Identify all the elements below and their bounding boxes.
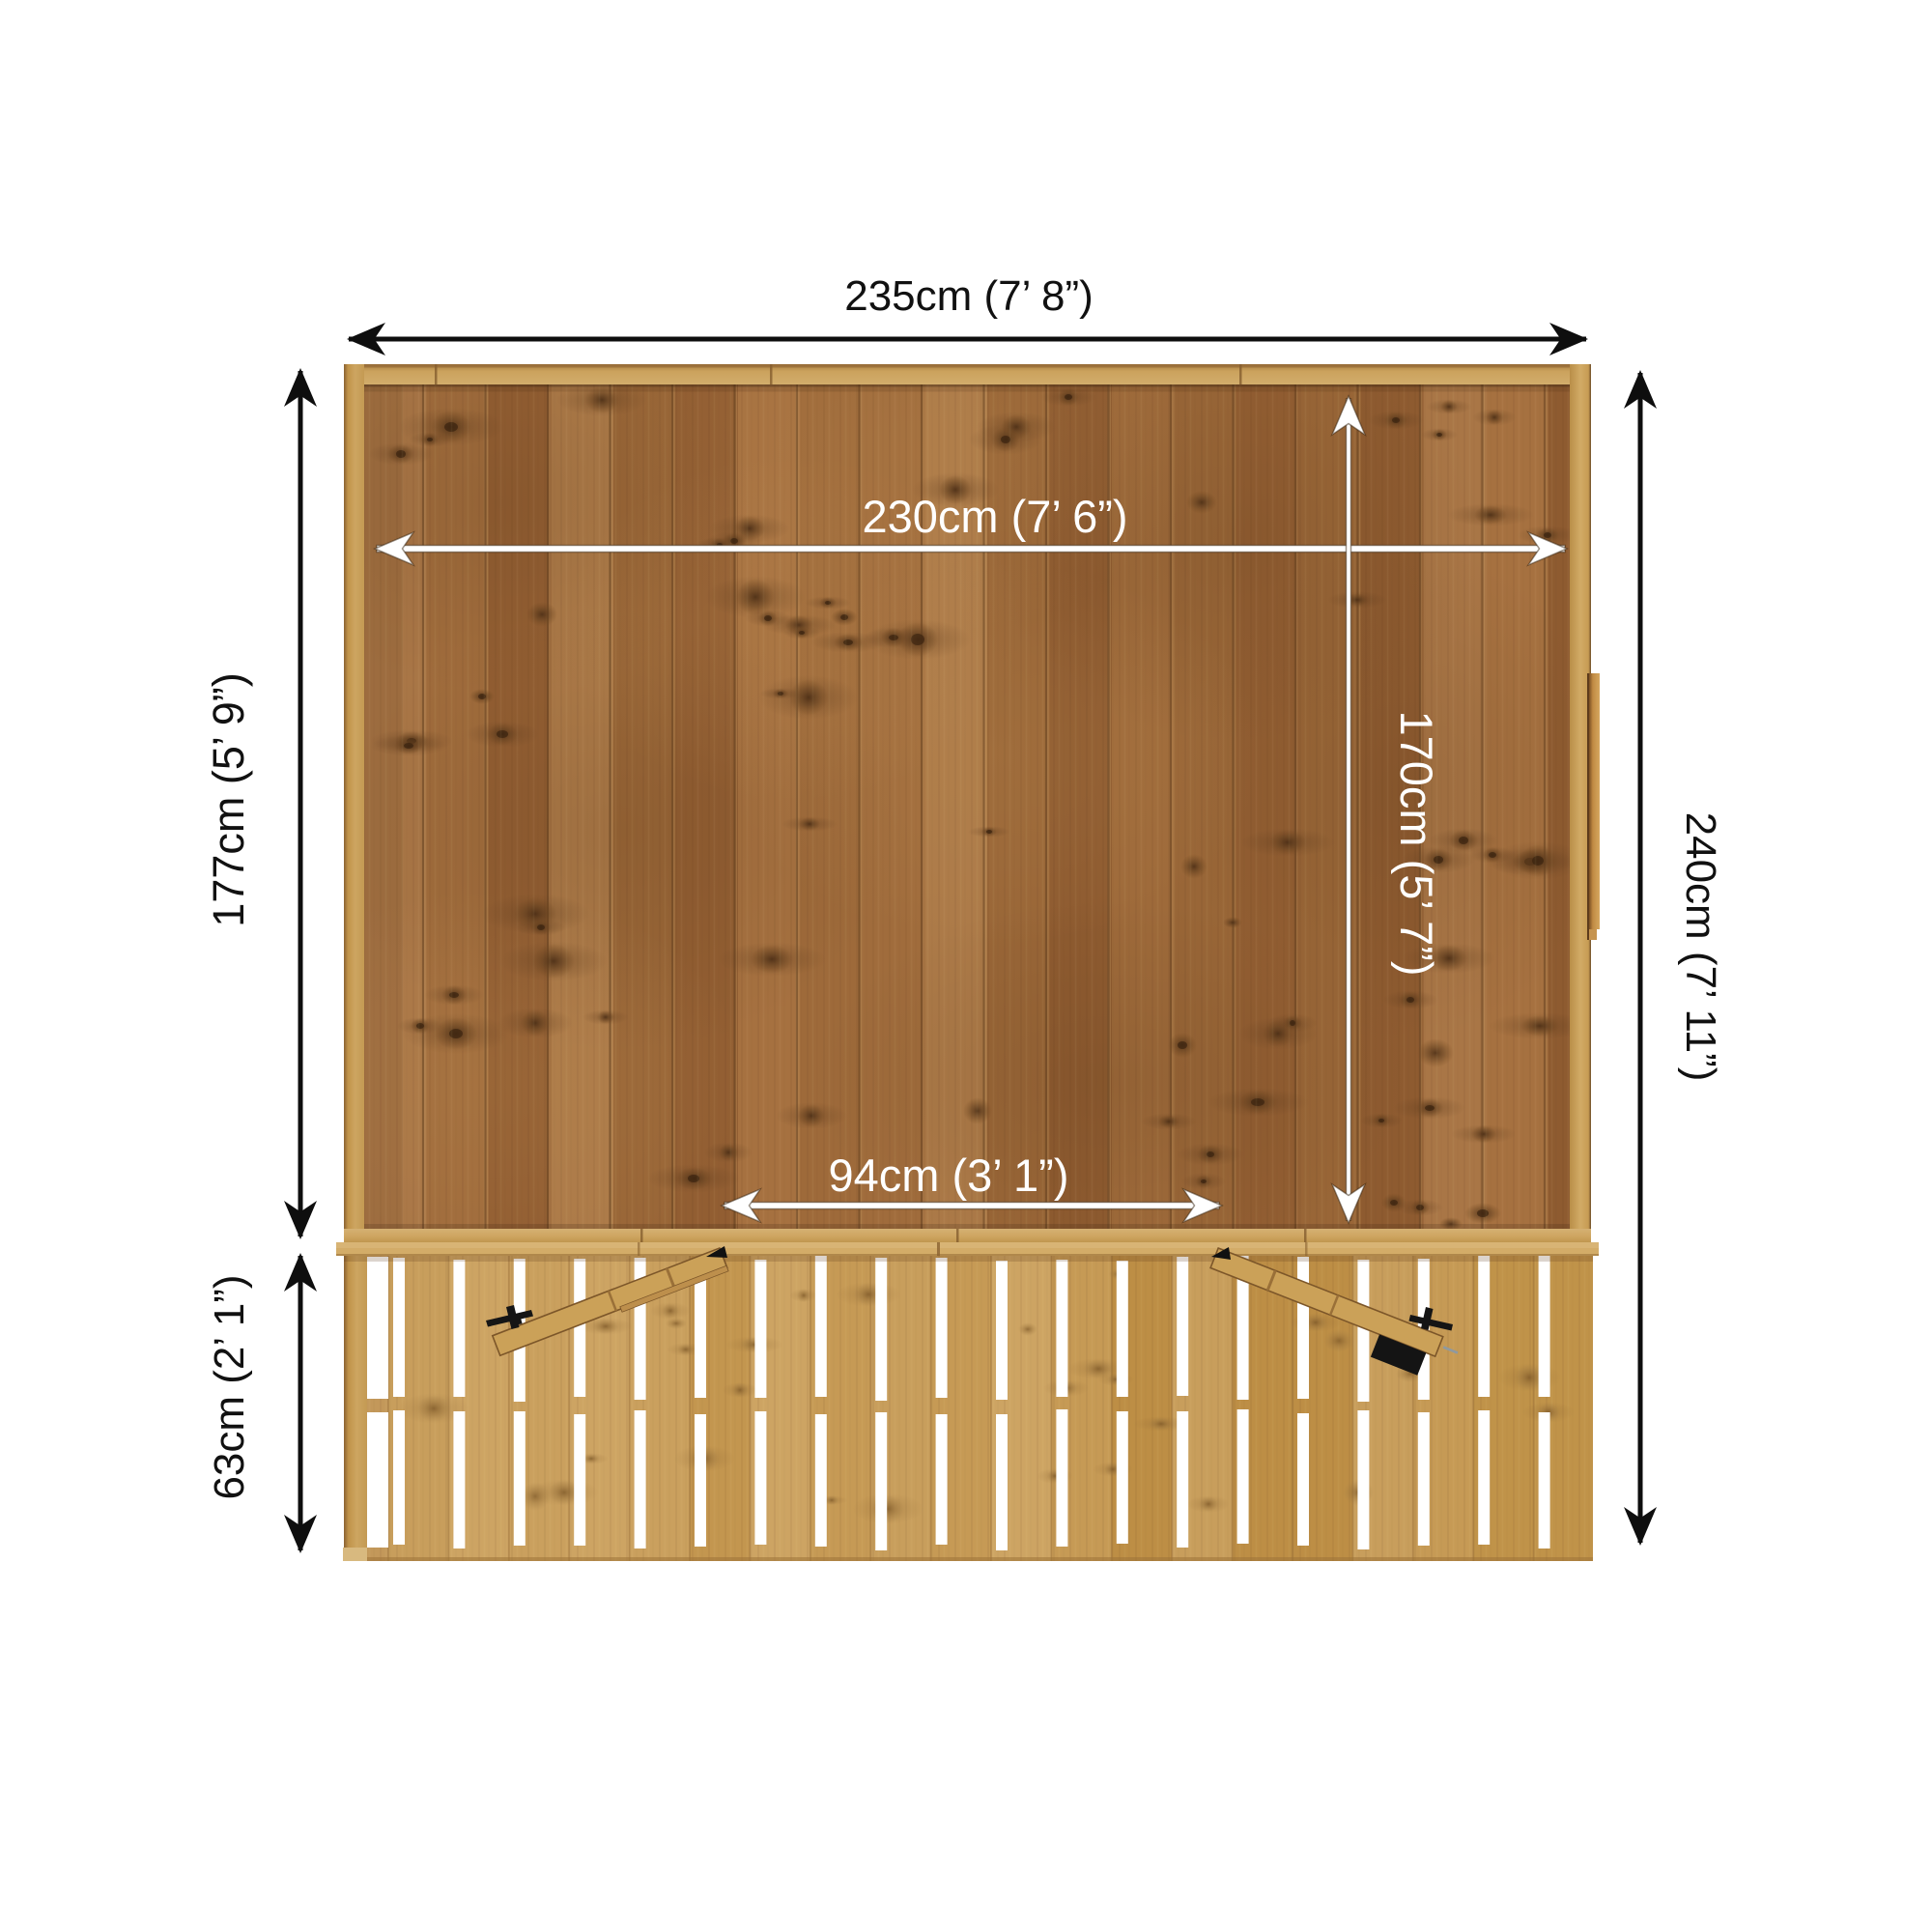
svg-text:170cm (5’ 7”): 170cm (5’ 7”) — [1391, 710, 1442, 976]
svg-text:63cm (2’ 1”): 63cm (2’ 1”) — [206, 1274, 253, 1499]
svg-text:94cm (3’ 1”): 94cm (3’ 1”) — [829, 1150, 1069, 1201]
svg-text:230cm (7’ 6”): 230cm (7’ 6”) — [862, 491, 1127, 542]
svg-text:240cm (7’ 11”): 240cm (7’ 11”) — [1677, 812, 1724, 1082]
svg-text:177cm (5’ 9”): 177cm (5’ 9”) — [204, 672, 253, 926]
svg-text:235cm (7’ 8”): 235cm (7’ 8”) — [844, 272, 1094, 320]
